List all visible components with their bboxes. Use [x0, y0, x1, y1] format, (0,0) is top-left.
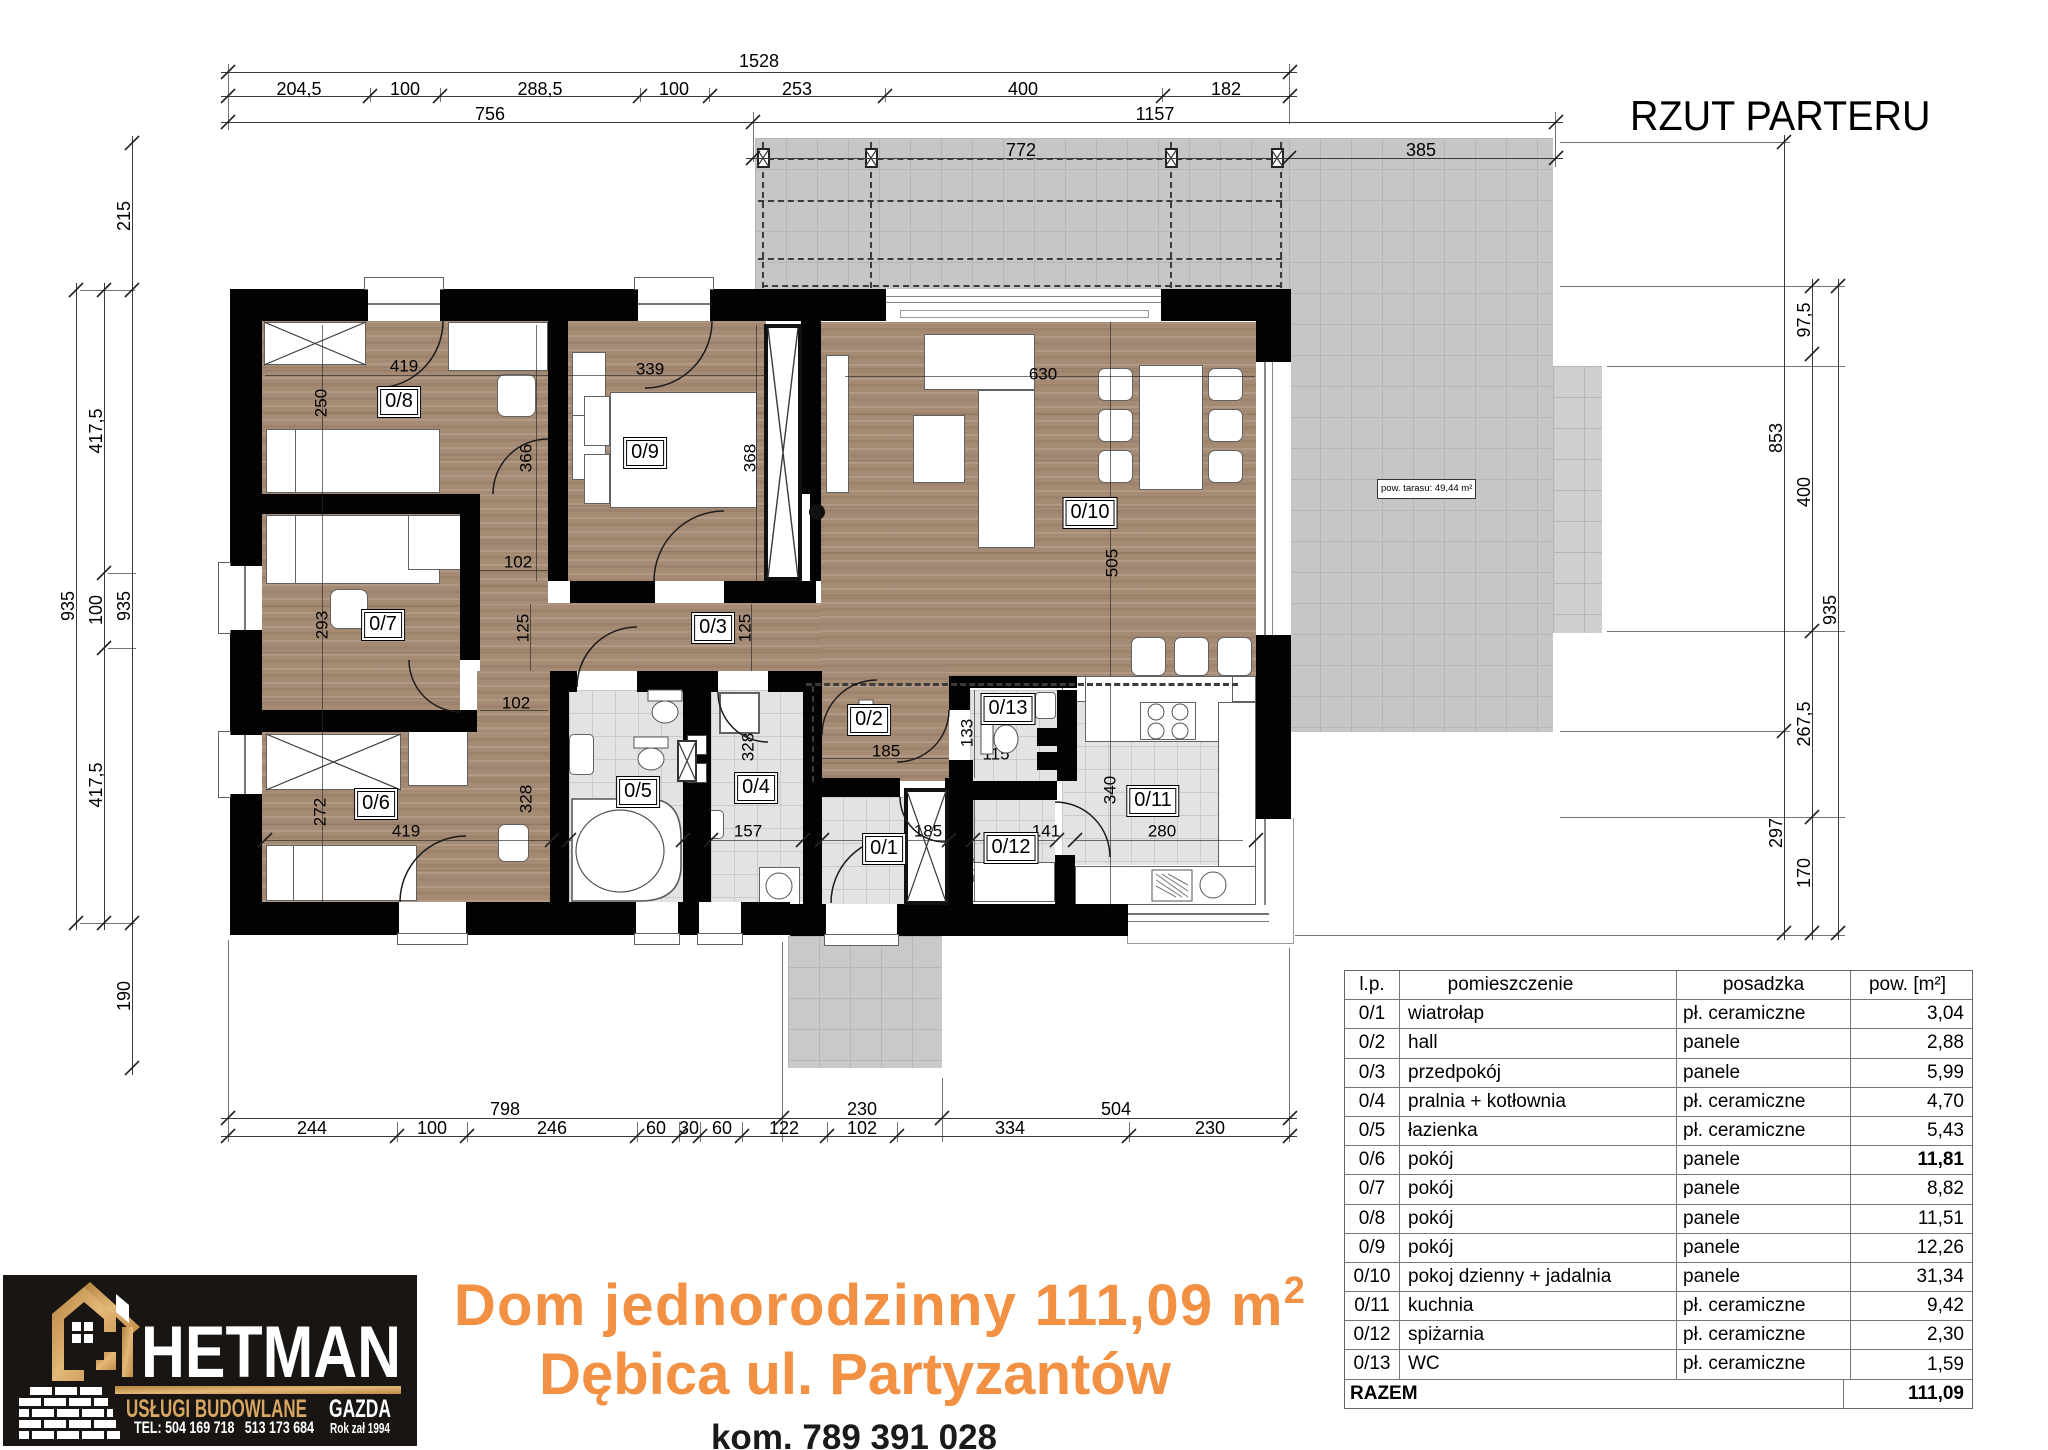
- svg-text:HETMAN: HETMAN: [141, 1312, 401, 1393]
- svg-text:Rok zał 1994: Rok zał 1994: [330, 1420, 390, 1437]
- svg-text:TEL: 504 169 718 513 173 684: TEL: 504 169 718 513 173 684: [134, 1419, 315, 1437]
- svg-text:GAZDA: GAZDA: [329, 1395, 391, 1423]
